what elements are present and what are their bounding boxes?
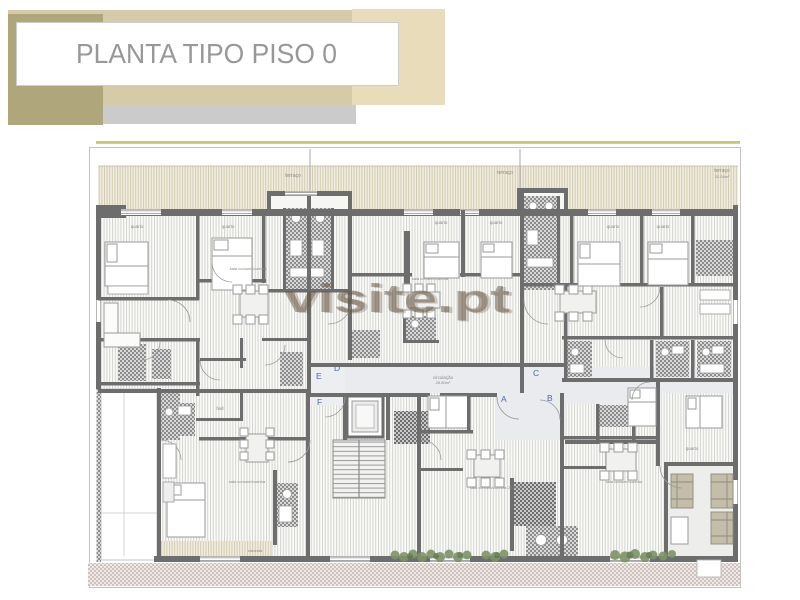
svg-text:sala comum/cozinha: sala comum/cozinha: [230, 266, 267, 271]
svg-text:quarto: quarto: [435, 220, 448, 225]
svg-text:C: C: [533, 368, 539, 378]
svg-text:quarto: quarto: [657, 224, 670, 229]
svg-text:visite.pt: visite.pt: [284, 277, 510, 321]
svg-text:quarto: quarto: [131, 224, 144, 229]
svg-text:quarto: quarto: [607, 224, 620, 229]
svg-text:sala comum/cozinha: sala comum/cozinha: [229, 479, 266, 484]
svg-text:varanda: varanda: [248, 548, 263, 553]
svg-text:sala comum/cozinha 22.05m²: sala comum/cozinha 22.05m²: [470, 485, 523, 490]
svg-text:E: E: [316, 371, 322, 381]
svg-text:quarto: quarto: [222, 224, 235, 229]
svg-text:hall: hall: [216, 406, 223, 411]
svg-text:terraço: terraço: [285, 173, 301, 179]
svg-text:quarto: quarto: [490, 220, 503, 225]
svg-text:32.04m²: 32.04m²: [715, 174, 730, 179]
svg-text:A: A: [501, 394, 507, 404]
svg-text:quarto: quarto: [686, 446, 699, 451]
svg-text:sala comum/cozinha: sala comum/cozinha: [606, 479, 643, 484]
svg-text:terraço: terraço: [497, 170, 513, 176]
svg-text:28.80m²: 28.80m²: [436, 380, 451, 385]
svg-text:F: F: [317, 397, 322, 407]
svg-text:PLANTA TIPO PISO 0: PLANTA TIPO PISO 0: [76, 38, 337, 69]
